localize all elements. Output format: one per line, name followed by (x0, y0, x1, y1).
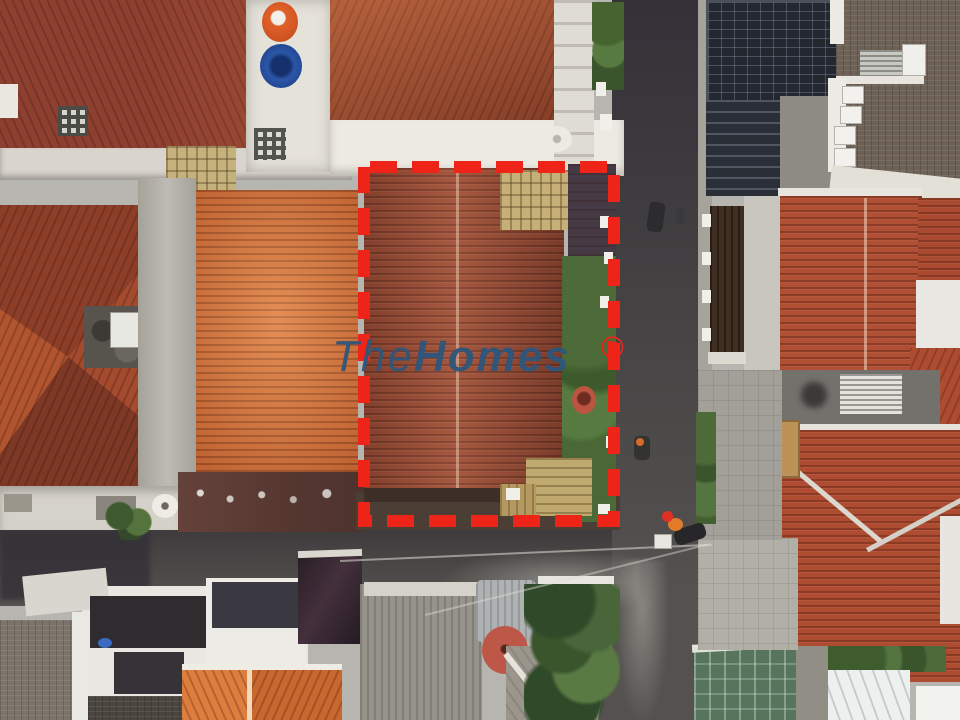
aerial-photo: TheHomes ® (0, 0, 960, 720)
registered-trademark-icon: ® (601, 330, 624, 366)
watermark-the: The (332, 332, 414, 381)
watermark-homes: Homes (414, 332, 571, 381)
watermark: TheHomes (332, 333, 571, 381)
